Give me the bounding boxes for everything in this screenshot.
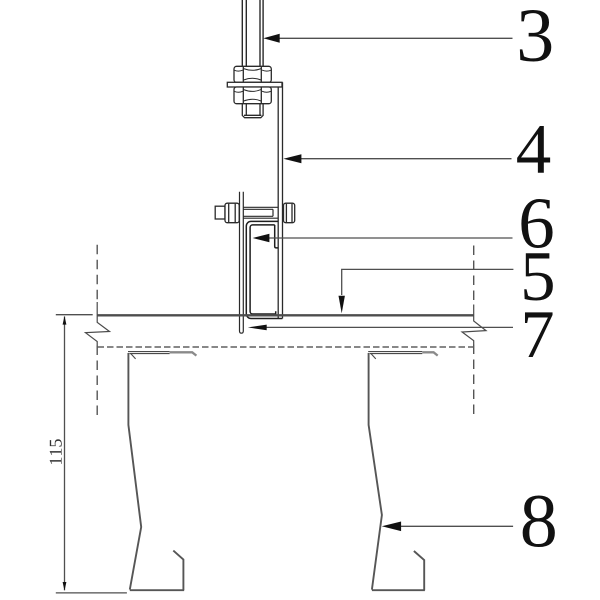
- svg-text:7: 7: [521, 296, 555, 372]
- svg-text:8: 8: [520, 479, 558, 563]
- svg-text:4: 4: [516, 110, 552, 188]
- svg-text:3: 3: [516, 0, 554, 78]
